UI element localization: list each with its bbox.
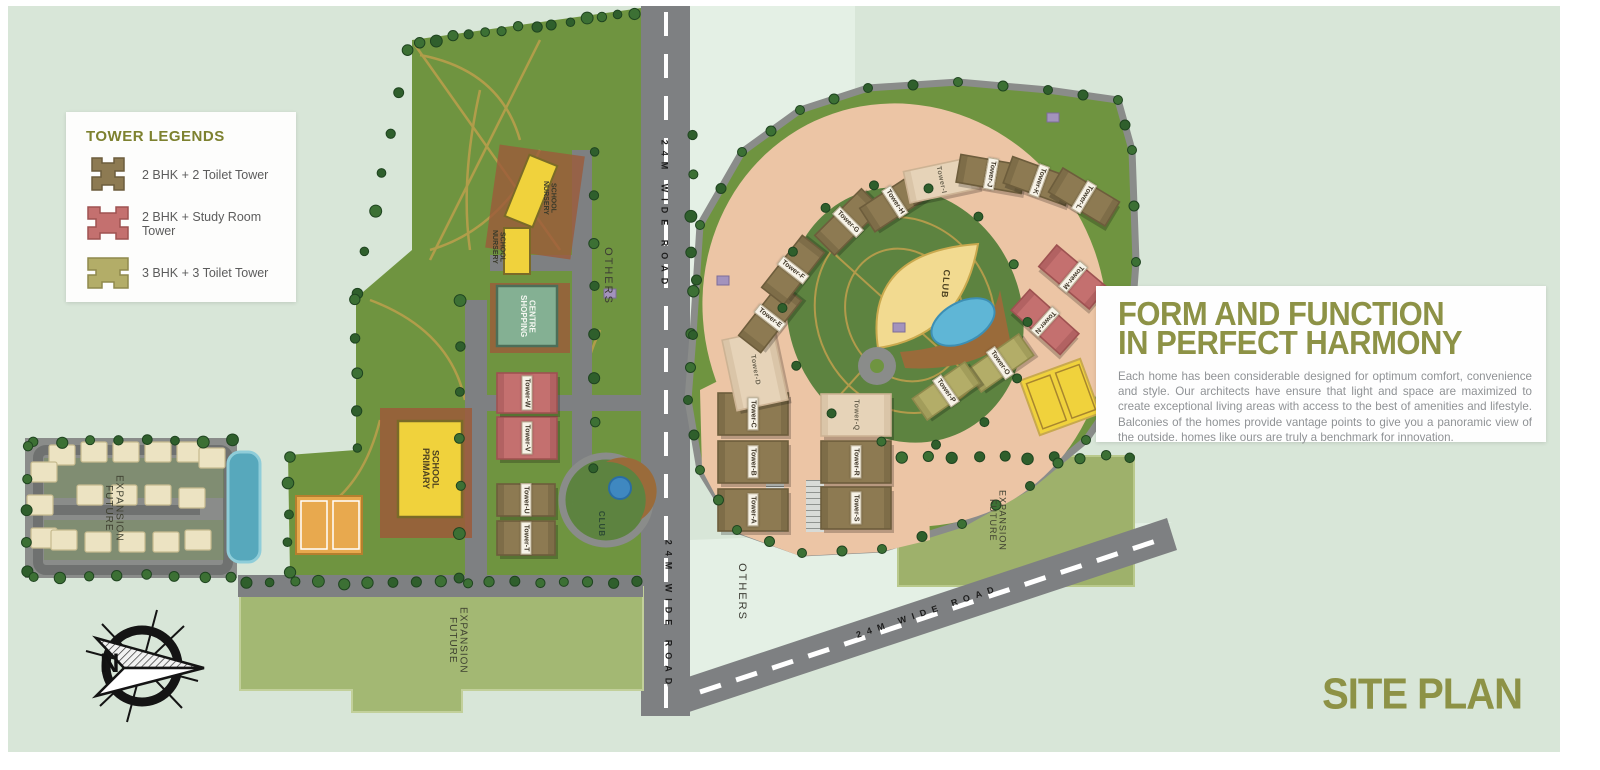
tree	[285, 510, 294, 519]
tree	[864, 84, 873, 93]
future-tower-footprint	[77, 485, 103, 505]
tree	[1053, 458, 1063, 468]
tree	[974, 212, 983, 221]
club-central-label: CLUB	[939, 269, 951, 299]
tree	[453, 528, 465, 540]
tree	[481, 28, 490, 37]
tree	[57, 437, 68, 448]
tower-label-q: Tower-Q	[852, 397, 861, 432]
club-west-label: CLUB	[597, 511, 605, 537]
tree	[1101, 451, 1110, 460]
tree	[766, 126, 776, 136]
tower-legends-box: TOWER LEGENDS 2 BHK + 2 Toilet Tower2 BH…	[66, 112, 296, 302]
tree	[464, 579, 473, 588]
primary-school-label: PRIMARY SCHOOL	[421, 432, 440, 506]
tree	[430, 35, 442, 47]
tree	[402, 45, 413, 56]
tree	[86, 436, 95, 445]
tree	[29, 573, 38, 582]
tree	[975, 452, 985, 462]
tower-label-t: Tower-T	[521, 522, 532, 555]
tree	[827, 409, 836, 418]
future-tower-footprint	[81, 442, 107, 462]
tree	[370, 205, 382, 217]
tree	[559, 577, 568, 586]
tree	[1009, 260, 1018, 269]
tree	[386, 129, 395, 138]
tree	[353, 444, 361, 452]
tree	[23, 441, 32, 450]
tree	[362, 577, 373, 588]
tree	[454, 434, 464, 444]
future-tower-footprint	[179, 488, 205, 508]
tree	[684, 396, 693, 405]
tree	[377, 169, 386, 178]
tree	[796, 106, 805, 115]
tree	[1078, 90, 1088, 100]
tree	[448, 31, 458, 41]
tower-label-u: Tower-U	[521, 483, 532, 516]
tree	[241, 577, 252, 588]
tree	[282, 477, 294, 489]
tree	[142, 435, 152, 445]
tree	[590, 417, 600, 427]
tree	[632, 576, 642, 586]
tree	[464, 30, 473, 39]
future-tower-footprint	[145, 485, 171, 505]
tree	[226, 572, 236, 582]
tree	[265, 578, 274, 587]
legend-item-label: 2 BHK + Study Room Tower	[142, 210, 296, 238]
tree	[613, 10, 622, 19]
tree	[788, 247, 797, 256]
tree	[877, 437, 886, 446]
tree	[1125, 453, 1135, 463]
pink-tower-icon	[84, 205, 134, 243]
tree	[685, 210, 697, 222]
tree	[896, 452, 907, 463]
tree	[792, 361, 801, 370]
info-heading-line2: IN PERFECT HARMONY	[1118, 327, 1532, 359]
tree	[689, 170, 698, 179]
tree	[532, 22, 542, 32]
tree	[837, 546, 847, 556]
tower-label-a: Tower-A	[748, 493, 759, 526]
legend-item-pink: 2 BHK + Study Room Tower	[84, 204, 296, 244]
tree	[411, 577, 421, 587]
tree	[456, 342, 465, 351]
future-tower-footprint	[145, 442, 171, 462]
tree	[352, 406, 362, 416]
tree	[227, 434, 239, 446]
tree	[285, 452, 296, 463]
tree	[765, 537, 775, 547]
tree	[829, 94, 839, 104]
tree	[23, 475, 32, 484]
tree	[954, 78, 963, 87]
tree	[686, 363, 696, 373]
tree	[869, 181, 878, 190]
legend-item-olive: 3 BHK + 3 Toilet Tower	[84, 253, 296, 293]
tree	[590, 148, 599, 157]
future-expansion-label-left: FUTURE EXPANSION	[103, 460, 124, 556]
tree	[339, 579, 350, 590]
tree	[1023, 318, 1032, 327]
shopping-centre-label: SHOPPING CENTRE	[519, 291, 536, 341]
tree	[142, 570, 152, 580]
tree	[980, 418, 989, 427]
tree	[291, 577, 300, 586]
tree	[924, 184, 933, 193]
tree	[932, 440, 941, 449]
tree	[1026, 482, 1035, 491]
tree	[22, 537, 32, 547]
tree	[114, 436, 123, 445]
nursery-school-label-lower: NURSERY SCHOOL	[491, 219, 506, 275]
info-body-text: Each home has been considerable designed…	[1118, 369, 1532, 445]
others-label-top: OTHERS	[601, 247, 613, 305]
future-tower-footprint	[153, 532, 179, 552]
tree	[455, 387, 464, 396]
tree	[497, 27, 506, 36]
tree	[1075, 454, 1085, 464]
tree	[54, 572, 65, 583]
tree	[546, 20, 556, 30]
tree	[686, 247, 697, 258]
brown-tower-icon	[84, 156, 134, 194]
tree	[312, 575, 324, 587]
tree	[581, 12, 593, 24]
tree	[821, 203, 830, 212]
tree	[350, 294, 360, 304]
legend-item-label: 2 BHK + 2 Toilet Tower	[142, 168, 268, 182]
nursery-school-label-upper: NURSERY SCHOOL	[542, 170, 557, 226]
future-expansion-label-right: FUTURE EXPANSION	[988, 480, 1007, 560]
tree	[590, 281, 599, 290]
tree	[878, 545, 887, 554]
legend-item-brown: 2 BHK + 2 Toilet Tower	[84, 155, 296, 195]
road-label-vertical-bottom: 24M WIDE ROAD	[663, 540, 672, 691]
tree	[917, 532, 927, 542]
tree	[958, 520, 967, 529]
tree	[21, 505, 32, 516]
tree	[696, 221, 705, 230]
tree	[435, 576, 446, 587]
tree	[169, 571, 179, 581]
tree	[197, 436, 209, 448]
tree	[738, 148, 747, 157]
tower-label-w: Tower-W	[522, 375, 533, 410]
tree	[589, 191, 598, 200]
tower-legends-title: TOWER LEGENDS	[86, 128, 296, 145]
tree	[1114, 96, 1123, 105]
tree	[1128, 146, 1137, 155]
tree	[394, 88, 404, 98]
tree	[454, 295, 466, 307]
tree	[283, 538, 292, 547]
tree	[609, 578, 619, 588]
tower-label-c: Tower-C	[748, 397, 759, 430]
tree	[112, 571, 122, 581]
info-panel: FORM AND FUNCTION IN PERFECT HARMONY Eac…	[1096, 286, 1546, 442]
future-tower-footprint	[31, 462, 57, 482]
tree	[629, 8, 640, 19]
tree	[513, 22, 522, 31]
tree	[84, 572, 93, 581]
site-plan-title: SITE PLAN	[1312, 670, 1522, 720]
road-label-vertical-top: 24M WIDE ROAD	[659, 140, 668, 291]
tree	[1022, 453, 1033, 464]
tree	[388, 578, 398, 588]
tower-label-b: Tower-B	[748, 445, 759, 478]
tree	[589, 238, 599, 248]
tree	[360, 247, 369, 256]
tree	[778, 303, 787, 312]
tree	[1013, 374, 1022, 383]
tree	[923, 451, 933, 461]
tree	[566, 18, 575, 27]
compass-north-label: N	[100, 648, 120, 679]
roundabout	[858, 347, 896, 385]
tree	[1044, 86, 1053, 95]
tree	[1132, 258, 1141, 267]
tree	[1082, 436, 1091, 445]
tree	[454, 573, 464, 583]
tree	[1000, 451, 1010, 461]
tree	[582, 577, 592, 587]
tree	[1129, 201, 1139, 211]
tree	[998, 81, 1008, 91]
olive-tower-icon	[84, 254, 134, 292]
legend-item-label: 3 BHK + 3 Toilet Tower	[142, 266, 268, 280]
future-tower-footprint	[185, 530, 211, 550]
tree	[714, 495, 724, 505]
tree	[414, 38, 424, 48]
tower-label-v: Tower-V	[522, 421, 533, 454]
tree	[946, 452, 957, 463]
tree	[350, 334, 360, 344]
tower-label-r: Tower-R	[851, 445, 862, 478]
tree	[908, 80, 918, 90]
tree	[456, 481, 465, 490]
tree	[689, 331, 698, 340]
tree	[1120, 120, 1130, 130]
sw-pool	[228, 452, 260, 562]
tree	[798, 549, 807, 558]
tree	[589, 464, 598, 473]
tree	[688, 286, 699, 297]
tree	[536, 578, 545, 587]
others-label-bottom: OTHERS	[735, 563, 747, 621]
tree	[597, 12, 606, 21]
site-plan-poster: { "page": { "site_plan_title": "SITE PLA…	[0, 0, 1600, 770]
tree	[716, 184, 726, 194]
tower-label-s: Tower-S	[851, 491, 862, 524]
tree	[692, 275, 702, 285]
future-expansion-label-bottom: FUTURE EXPANSION	[447, 597, 468, 683]
future-expansion-bottom-area	[240, 587, 643, 712]
tree	[200, 572, 210, 582]
tree	[689, 430, 699, 440]
tennis-courts-left	[296, 496, 362, 554]
tree	[589, 329, 600, 340]
future-tower-footprint	[51, 530, 77, 550]
tree	[733, 526, 742, 535]
tree	[484, 577, 494, 587]
tree	[589, 373, 600, 384]
tree	[171, 436, 180, 445]
tree	[510, 576, 520, 586]
tree	[688, 130, 697, 139]
tree	[696, 466, 705, 475]
tree	[284, 567, 295, 578]
tree	[352, 368, 363, 379]
future-tower-footprint	[199, 448, 225, 468]
